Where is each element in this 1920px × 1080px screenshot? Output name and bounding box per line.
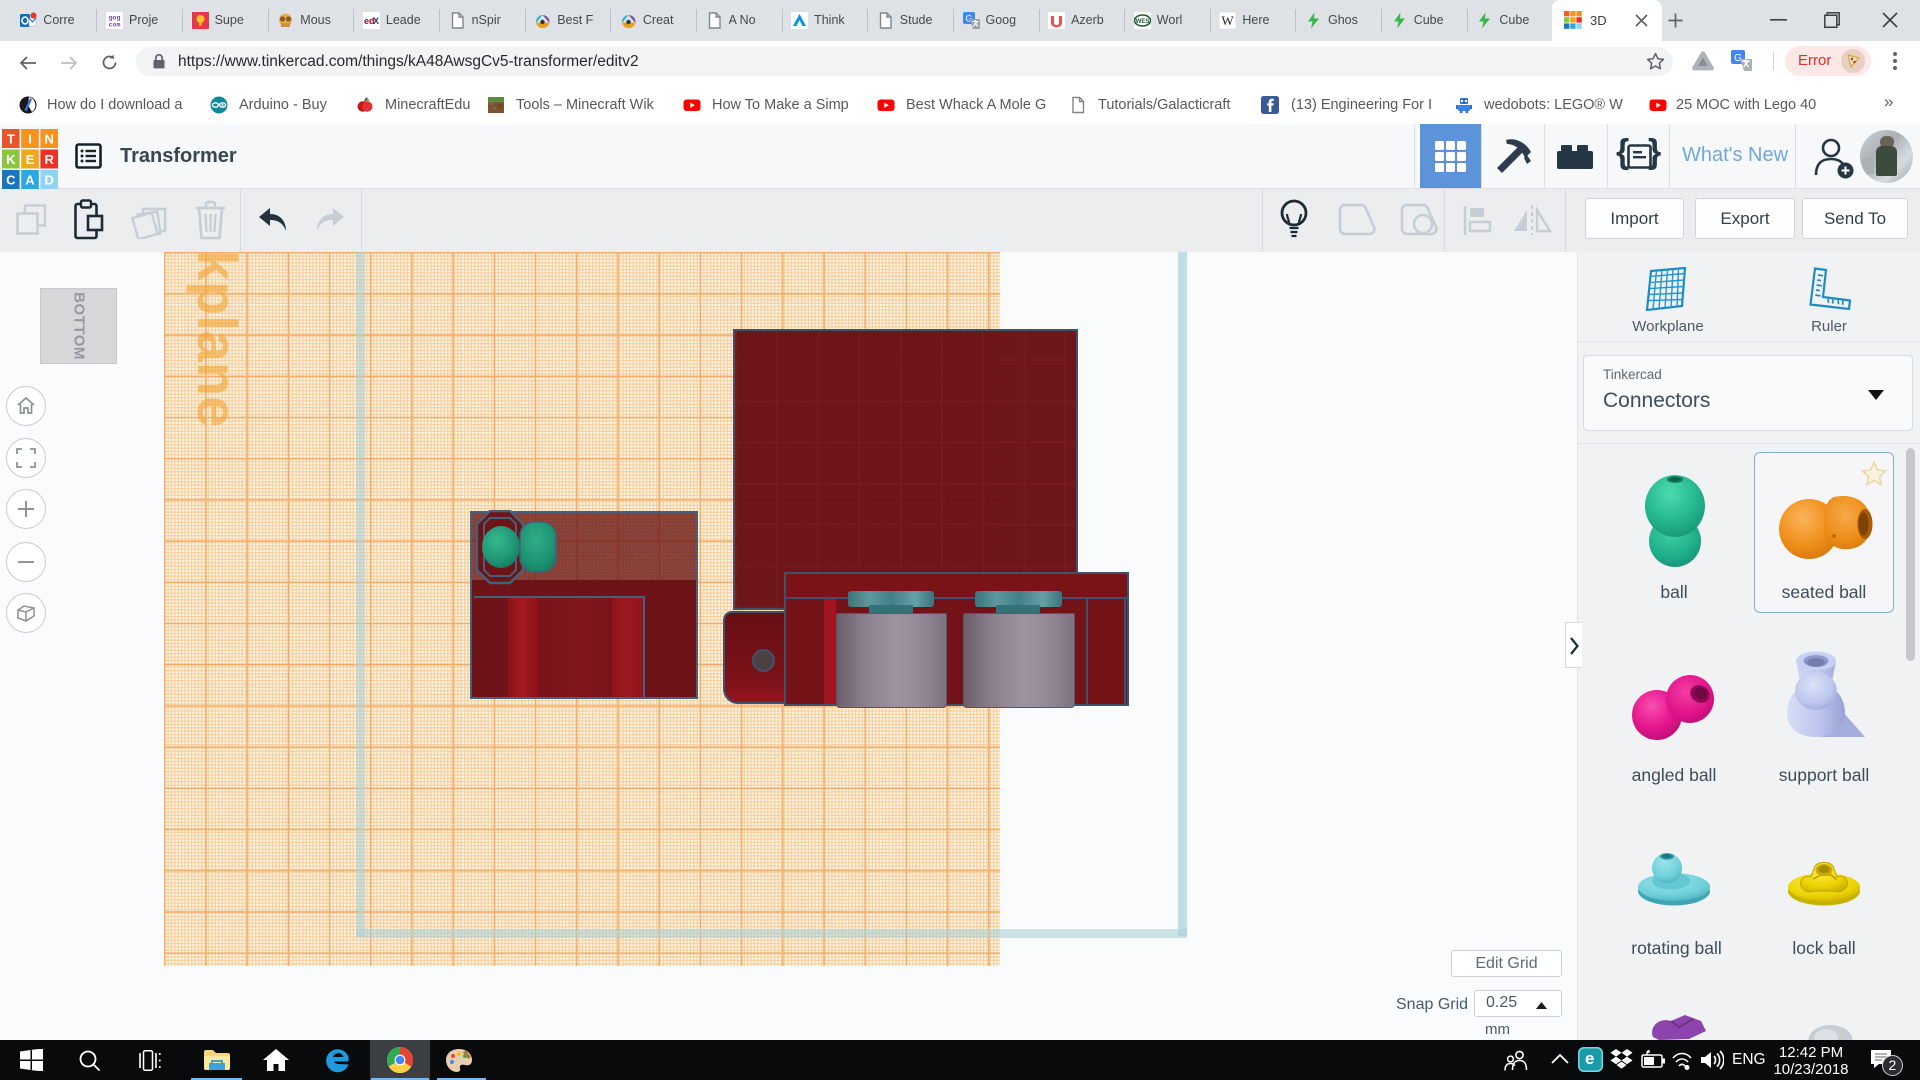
svg-text:X: X (373, 16, 379, 26)
svg-text:C: C (6, 173, 16, 188)
svg-text:D: D (45, 173, 54, 188)
svg-text:R: R (45, 152, 55, 167)
svg-text:G: G (1734, 53, 1742, 64)
svg-text:A: A (25, 173, 35, 188)
svg-text:WES: WES (1135, 19, 1149, 25)
svg-text:T: T (7, 132, 15, 147)
svg-text:I: I (28, 132, 32, 147)
svg-text:K: K (6, 152, 16, 167)
svg-text:com: com (109, 22, 121, 29)
svg-text:N: N (45, 132, 54, 147)
svg-text:E: E (26, 152, 35, 167)
svg-text:gog: gog (109, 15, 121, 22)
svg-text:W: W (1222, 13, 1235, 28)
